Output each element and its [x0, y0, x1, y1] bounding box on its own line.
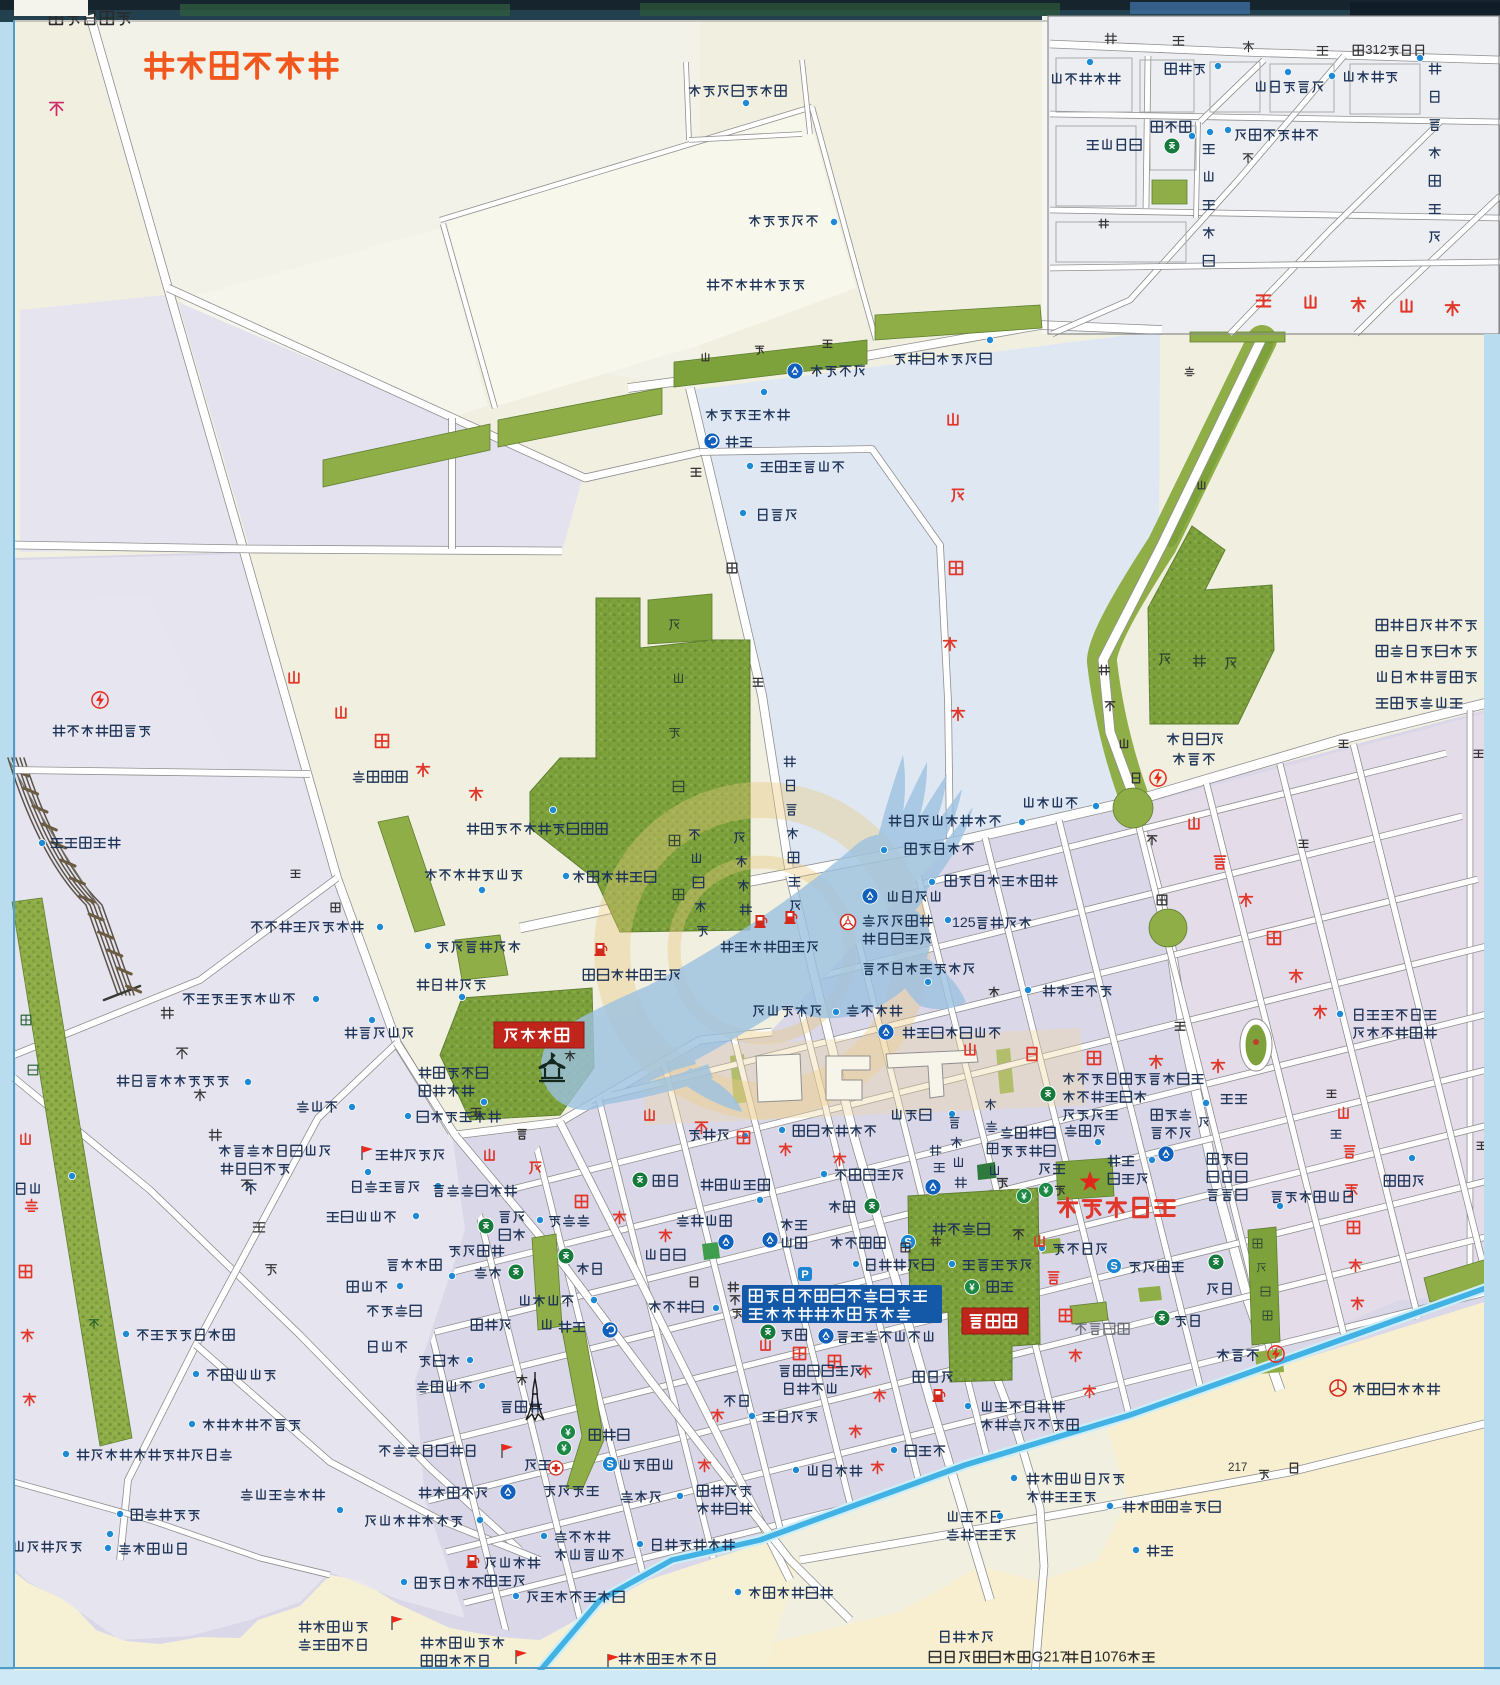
svg-text:¥: ¥ — [1043, 1185, 1049, 1196]
svg-text:1076: 1076 — [1094, 1650, 1127, 1666]
svg-text:¥: ¥ — [1021, 1191, 1027, 1202]
svg-text:S: S — [606, 1459, 613, 1471]
svg-text:¥: ¥ — [561, 1443, 567, 1454]
svg-text:S: S — [1110, 1261, 1117, 1273]
svg-text:G217: G217 — [1032, 1650, 1068, 1666]
svg-text:217: 217 — [1228, 1461, 1247, 1474]
svg-text:¥: ¥ — [565, 1427, 571, 1438]
svg-text:¥: ¥ — [969, 1282, 975, 1293]
svg-text:125: 125 — [952, 915, 976, 931]
svg-text:312: 312 — [1365, 42, 1387, 57]
svg-text:P: P — [801, 1269, 808, 1281]
